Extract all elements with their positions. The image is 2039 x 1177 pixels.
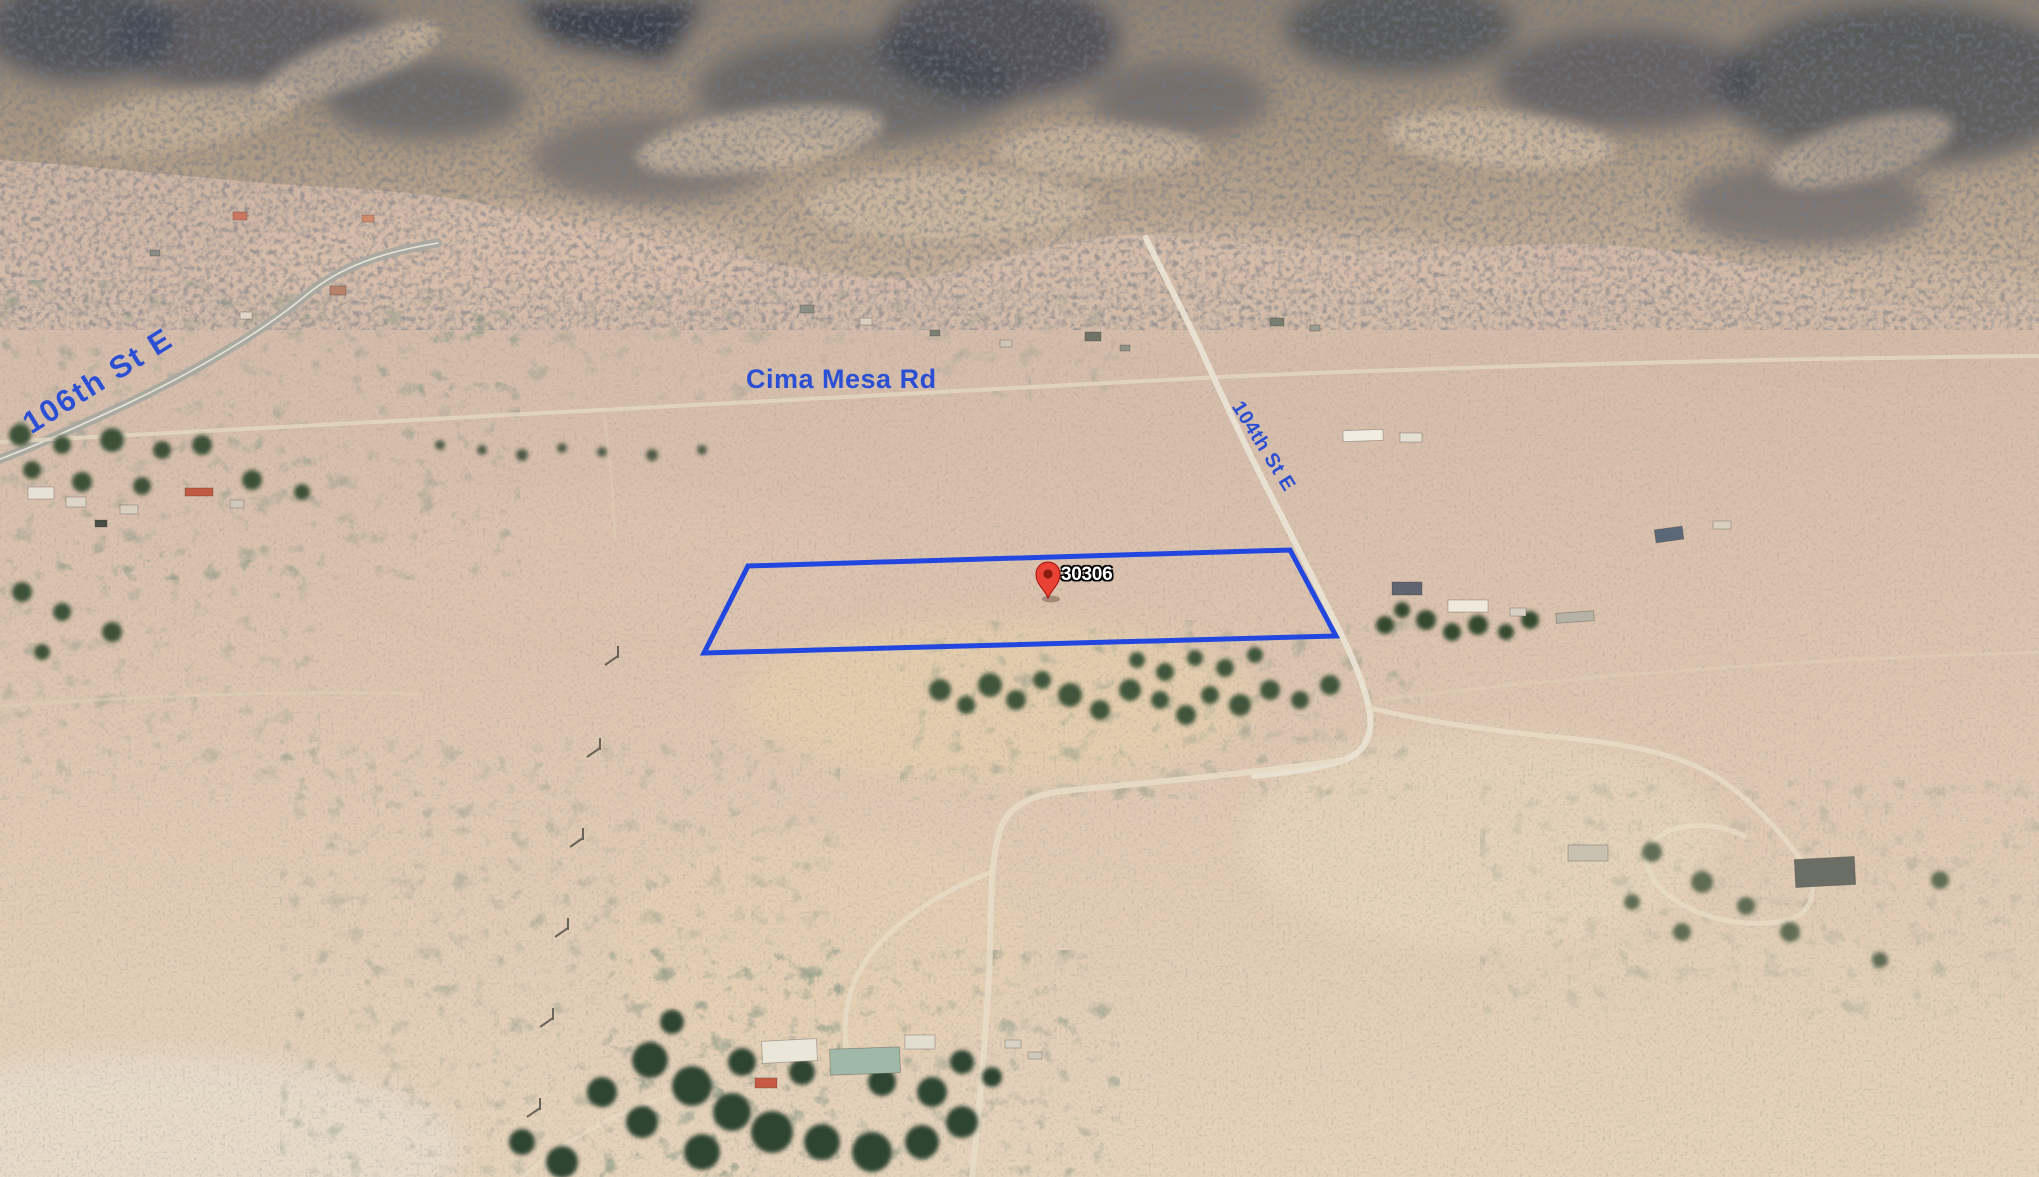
pin-inner-dot [1043, 569, 1052, 578]
map-viewport[interactable]: 106th St E Cima Mesa Rd 104th St E 30306 [0, 0, 2039, 1177]
parcel-number-label: 30306 [1061, 564, 1112, 586]
road-label-cima-mesa-rd: Cima Mesa Rd [746, 364, 937, 395]
pin-shadow [1042, 596, 1060, 603]
parcel-overlay [0, 0, 2039, 1177]
pin-icon [1036, 562, 1060, 598]
parcel-outline [704, 550, 1336, 653]
